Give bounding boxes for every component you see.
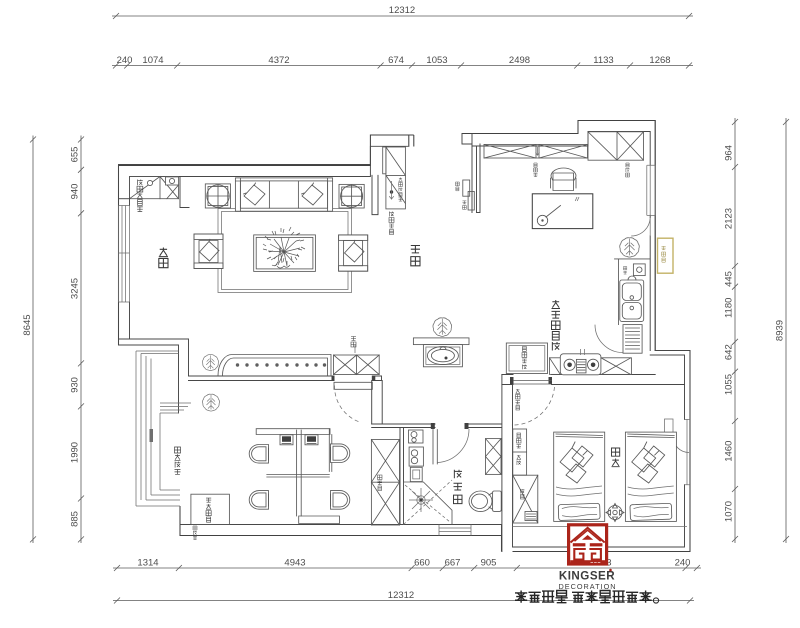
svg-text:3245: 3245 (70, 278, 81, 299)
svg-text:964: 964 (724, 145, 735, 161)
svg-text:655: 655 (70, 147, 81, 163)
svg-text:KINGSER: KINGSER (559, 570, 615, 583)
svg-text:DECORATION: DECORATION (558, 582, 616, 591)
svg-text:1133: 1133 (593, 55, 613, 66)
svg-text:240: 240 (675, 558, 691, 569)
svg-text:2123: 2123 (724, 208, 735, 229)
svg-text:667: 667 (445, 558, 461, 569)
svg-text:674: 674 (388, 55, 404, 66)
svg-text:1990: 1990 (70, 442, 81, 463)
svg-text:4372: 4372 (268, 55, 289, 66)
svg-text:8645: 8645 (22, 314, 33, 335)
svg-text:2498: 2498 (509, 55, 530, 66)
svg-text:4943: 4943 (284, 558, 305, 569)
svg-text:905: 905 (481, 558, 497, 569)
svg-text:940: 940 (70, 184, 81, 200)
svg-text:1053: 1053 (426, 55, 447, 66)
svg-text:1070: 1070 (724, 501, 735, 522)
svg-text:1460: 1460 (724, 441, 735, 462)
svg-text:240: 240 (117, 55, 133, 66)
svg-text:1074: 1074 (142, 55, 163, 66)
svg-text:930: 930 (70, 377, 81, 393)
svg-text:1055: 1055 (724, 374, 735, 395)
svg-text:642: 642 (724, 344, 735, 360)
svg-text:12312: 12312 (388, 590, 414, 601)
svg-text:1180: 1180 (724, 298, 735, 318)
svg-text:1268: 1268 (649, 55, 670, 66)
svg-text:660: 660 (414, 558, 430, 569)
svg-text:885: 885 (70, 511, 81, 527)
svg-text:12312: 12312 (389, 5, 415, 16)
svg-text:445: 445 (724, 271, 735, 287)
svg-text:8939: 8939 (775, 320, 786, 341)
svg-text:1314: 1314 (137, 558, 158, 569)
